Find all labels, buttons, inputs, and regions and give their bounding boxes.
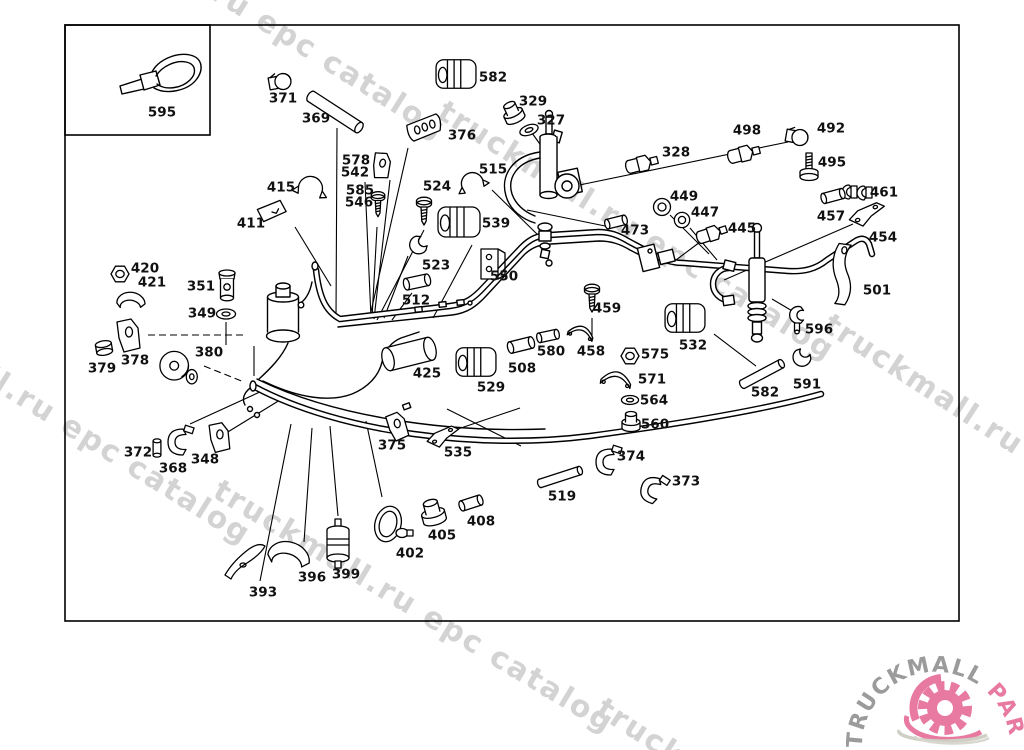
leader-line [366, 421, 382, 497]
part-label-461: 461 [870, 185, 898, 201]
part-glyph-405 [418, 497, 447, 528]
part-glyph-529 [456, 348, 496, 377]
leader-line [304, 428, 312, 542]
part-glyph-498 [726, 143, 761, 165]
part-label-501: 501 [863, 283, 891, 299]
part-glyph-420 [111, 266, 129, 282]
part-glyph-447 [674, 212, 689, 227]
leader-line [455, 408, 520, 430]
part-label-375: 375 [378, 438, 406, 454]
part-glyph-421 [116, 290, 146, 310]
part-label-371: 371 [269, 91, 297, 107]
part-glyph-492 [785, 126, 810, 147]
part-label-524: 524 [423, 179, 451, 195]
part-glyph-351 [219, 270, 235, 301]
part-label-523: 523 [422, 258, 450, 274]
part-glyph-415 [292, 173, 330, 199]
part-glyph-408 [458, 494, 484, 511]
part-label-582: 582 [751, 385, 779, 401]
part-label-329: 329 [519, 94, 547, 110]
part-label-328: 328 [662, 145, 690, 161]
part-glyph-445 [695, 222, 729, 245]
part-label-399: 399 [332, 567, 360, 583]
part-glyph-532 [665, 304, 705, 333]
part-label-571: 571 [638, 372, 666, 388]
part-label-542: 542 [341, 165, 369, 181]
parts-diagram: 5953713695823293273763284984924955785425… [0, 0, 1024, 750]
part-glyph-596 [790, 307, 804, 334]
part-label-421: 421 [138, 275, 166, 291]
part-label-473: 473 [621, 223, 649, 239]
part-glyph-371 [268, 71, 293, 92]
part-label-368: 368 [159, 461, 187, 477]
part-label-535: 535 [444, 445, 472, 461]
part-label-595: 595 [148, 105, 176, 121]
part-label-351: 351 [187, 279, 215, 295]
part-glyph-399 [327, 519, 349, 568]
part-glyph-519 [537, 466, 584, 489]
part-label-560: 560 [641, 417, 669, 433]
part-label-445: 445 [728, 221, 756, 237]
part-label-546: 546 [345, 195, 373, 211]
part-label-411: 411 [237, 216, 265, 232]
part-label-550: 550 [490, 269, 518, 285]
part-glyph-396 [266, 536, 314, 573]
part-label-564: 564 [640, 393, 668, 409]
part-label-580: 580 [537, 344, 565, 360]
part-label-376: 376 [448, 128, 476, 144]
part-label-369: 369 [302, 111, 330, 127]
part-label-529: 529 [477, 380, 505, 396]
part-label-408: 408 [467, 514, 495, 530]
part-label-380: 380 [195, 345, 223, 361]
part-glyph-449 [654, 199, 671, 216]
part-glyph-379 [95, 340, 113, 357]
part-label-447: 447 [691, 205, 719, 221]
part-glyph-348 [209, 423, 230, 453]
part-label-327: 327 [537, 113, 565, 129]
part-label-457: 457 [817, 209, 845, 225]
part-glyph-539 [438, 207, 480, 237]
catalog-page: truckmall.ru epc catalogtruckmall.ru epc… [0, 0, 1024, 750]
leader-line [260, 424, 291, 581]
part-label-519: 519 [548, 489, 576, 505]
part-label-425: 425 [413, 366, 441, 382]
part-glyph-582 [436, 60, 476, 89]
part-glyph-372 [153, 439, 161, 457]
part-label-348: 348 [191, 452, 219, 468]
part-label-508: 508 [508, 361, 536, 377]
part-label-349: 349 [188, 306, 216, 322]
part-label-373: 373 [672, 474, 700, 490]
part-label-596: 596 [805, 322, 833, 338]
part-label-591: 591 [793, 377, 821, 393]
part-label-492: 492 [817, 121, 845, 137]
part-glyph-578 [369, 151, 394, 181]
part-glyph-512 [402, 273, 431, 290]
leader-line [204, 366, 244, 382]
leader-line [330, 426, 338, 516]
part-glyph-524 [417, 197, 432, 225]
part-label-515: 515 [479, 162, 507, 178]
part-glyph-591 [790, 347, 813, 369]
part-glyph-378 [117, 319, 140, 352]
part-glyph-564 [621, 396, 638, 405]
part-glyph-508 [506, 336, 535, 354]
part-glyph-575 [621, 348, 639, 364]
part-label-379: 379 [88, 361, 116, 377]
leader-line [336, 128, 337, 318]
part-label-539: 539 [482, 216, 510, 232]
part-label-372: 372 [124, 445, 152, 461]
part-label-454: 454 [869, 230, 897, 246]
cable-tie-art [120, 54, 201, 94]
part-label-532: 532 [679, 338, 707, 354]
part-glyph-458 [567, 323, 595, 341]
part-glyph-501 [827, 243, 856, 305]
part-label-378: 378 [121, 353, 149, 369]
part-label-374: 374 [617, 449, 645, 465]
part-label-498: 498 [733, 123, 761, 139]
part-glyph-523 [406, 234, 429, 258]
leader-line [295, 227, 331, 286]
part-glyph-376 [405, 113, 443, 142]
truckmall-parts-logo: TRUCKMALL PARTS [846, 646, 1024, 750]
part-glyph-380 [160, 351, 197, 383]
part-label-459: 459 [593, 301, 621, 317]
part-label-415: 415 [267, 180, 295, 196]
part-label-582: 582 [479, 70, 507, 86]
leader-lines [148, 128, 853, 581]
part-glyph-461 [842, 185, 872, 200]
part-glyph-328 [624, 153, 659, 175]
part-glyph-373 [638, 471, 671, 507]
part-glyph-571 [600, 369, 632, 388]
leader-line [676, 242, 700, 260]
part-label-495: 495 [818, 155, 846, 171]
part-glyph-495 [800, 153, 818, 181]
part-glyph-560 [622, 412, 640, 432]
part-glyph-457 [820, 188, 846, 204]
part-glyph-580 [536, 329, 560, 343]
part-label-512: 512 [402, 293, 430, 309]
part-label-458: 458 [577, 344, 605, 360]
part-label-405: 405 [428, 528, 456, 544]
part-glyph-402 [371, 503, 413, 545]
part-label-449: 449 [670, 189, 698, 205]
part-glyph-349 [217, 309, 236, 319]
part-label-575: 575 [641, 347, 669, 363]
part-label-393: 393 [249, 585, 277, 601]
part-label-402: 402 [396, 546, 424, 562]
leader-line [714, 334, 756, 366]
part-label-396: 396 [298, 570, 326, 586]
part-glyph-393 [225, 545, 265, 579]
